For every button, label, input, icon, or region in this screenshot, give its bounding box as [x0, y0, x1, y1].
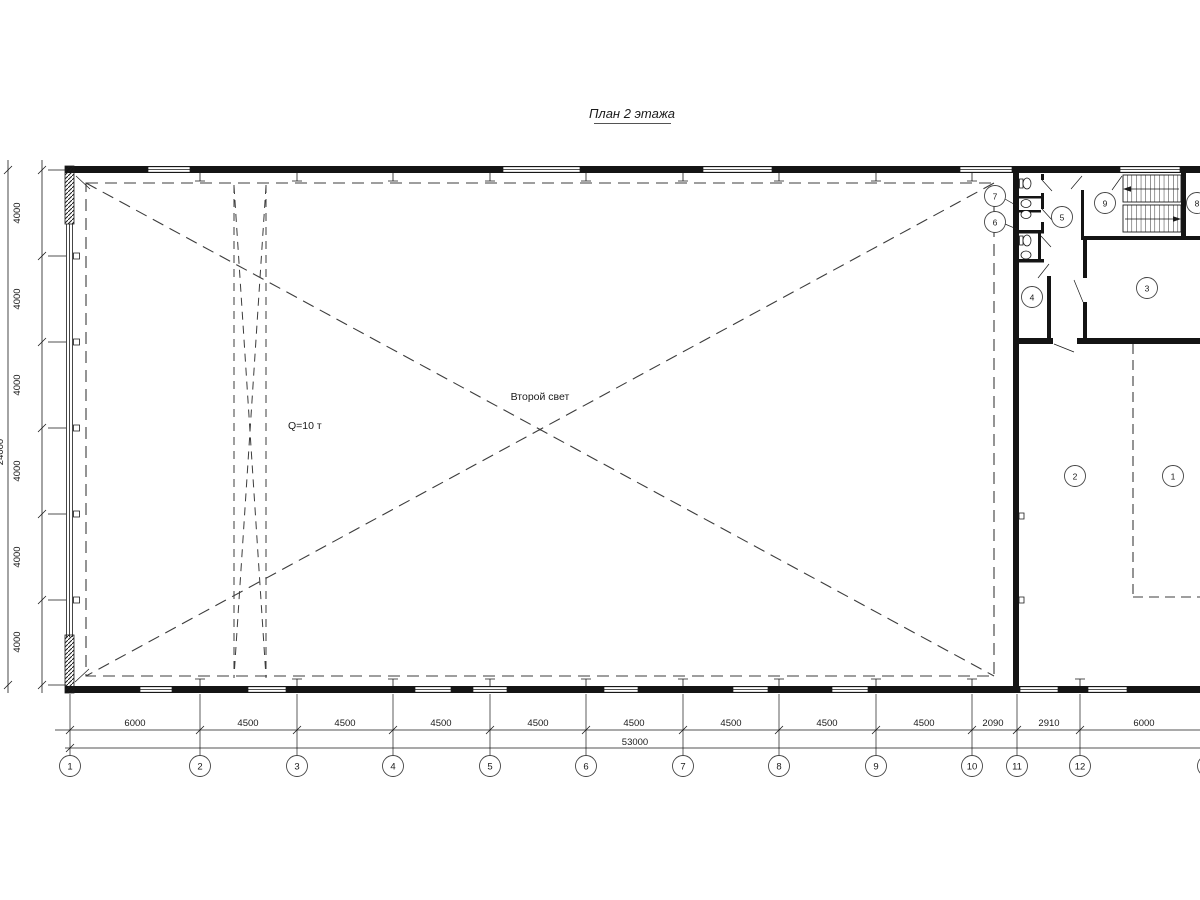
svg-text:5: 5	[487, 762, 492, 773]
dim-left-3: 4000	[12, 460, 23, 481]
crane-capacity-label: Q=10 т	[288, 420, 322, 432]
svg-text:9: 9	[1103, 199, 1108, 209]
bottom-dimensions: 6000 4500 4500 4500 4500 4500 4500 4500 …	[55, 694, 1200, 777]
room-bubble-3: 3	[1137, 278, 1158, 299]
sink-icon	[1021, 211, 1031, 219]
axis-bubble-3: 3	[287, 756, 308, 777]
svg-text:6: 6	[993, 218, 998, 228]
room-bubble-9: 9	[1095, 193, 1116, 214]
svg-text:3: 3	[294, 762, 299, 773]
left-dimensions: 4000 4000 4000 4000 4000 4000 24000	[0, 160, 66, 693]
dim-bottom-3: 4500	[430, 718, 451, 729]
svg-text:1: 1	[1171, 472, 1176, 482]
crane-cross	[234, 186, 266, 677]
dim-left-1: 4000	[12, 288, 23, 309]
axis-bubble-8: 8	[769, 756, 790, 777]
dim-left-0: 4000	[12, 202, 23, 223]
crane-runway: Q=10 т	[234, 185, 322, 678]
axis-bubble-12: 12	[1070, 756, 1091, 777]
axis-bubble-11: 11	[1007, 756, 1028, 777]
dim-left-5: 4000	[12, 631, 23, 652]
axis-bubble-9: 9	[866, 756, 887, 777]
toilet-icon	[1020, 236, 1024, 245]
room-bubble-7: 7	[985, 186, 1006, 207]
dim-total-bottom: 53000	[622, 737, 648, 748]
dim-bottom-9: 2090	[982, 718, 1003, 729]
dim-bottom-4: 4500	[527, 718, 548, 729]
svg-text:2: 2	[1073, 472, 1078, 482]
dim-bottom-2: 4500	[334, 718, 355, 729]
axis-bubble-2: 2	[190, 756, 211, 777]
axis-bubble-4: 4	[383, 756, 404, 777]
room-bubble-1: 1	[1163, 466, 1184, 487]
room-bubble-8: 8	[1187, 193, 1200, 214]
svg-text:5: 5	[1060, 213, 1065, 223]
page-title: План 2 этажа	[589, 106, 675, 121]
stair-flight-upper	[1123, 175, 1181, 202]
top-wall	[65, 166, 1200, 173]
second-light-void: Второй свет	[86, 183, 994, 676]
column-marks-right-wall	[1019, 513, 1024, 603]
second-light-label: Второй свет	[511, 391, 570, 403]
left-window-band	[67, 224, 73, 637]
room-bubble-5: 5	[1052, 207, 1073, 228]
svg-text:10: 10	[967, 762, 978, 773]
room-bubble-2: 2	[1065, 466, 1086, 487]
dim-bottom-10: 2910	[1038, 718, 1059, 729]
axis-bubble-1: 1	[60, 756, 81, 777]
svg-text:2: 2	[197, 762, 202, 773]
axis-bubble-10: 10	[962, 756, 983, 777]
hall-annex-dividing-wall	[1013, 166, 1019, 693]
dim-bottom-1: 4500	[237, 718, 258, 729]
axis-bubble-6: 6	[576, 756, 597, 777]
svg-text:12: 12	[1075, 762, 1086, 773]
dim-bottom-8: 4500	[913, 718, 934, 729]
room-bubble-6: 6	[985, 212, 1006, 233]
dim-bottom-0: 6000	[124, 718, 145, 729]
dim-bottom-7: 4500	[816, 718, 837, 729]
svg-text:8: 8	[1195, 199, 1200, 209]
svg-text:8: 8	[776, 762, 781, 773]
dim-left-2: 4000	[12, 374, 23, 395]
stair-flight-lower	[1123, 205, 1181, 232]
svg-text:9: 9	[873, 762, 878, 773]
column-marks-top	[195, 173, 977, 181]
dim-bottom-5: 4500	[623, 718, 644, 729]
dim-total-left: 24000	[0, 439, 6, 465]
corner-column-top-left	[65, 166, 74, 224]
column-marks-bottom	[195, 679, 1085, 686]
staircase	[1123, 175, 1181, 232]
sanitary-fixtures	[1020, 178, 1032, 259]
floor-plan-sheet: План 2 этажа	[0, 0, 1200, 900]
room-bubble-4: 4	[1022, 287, 1043, 308]
void-cross	[86, 183, 994, 676]
svg-text:11: 11	[1012, 762, 1022, 773]
sink-icon	[1021, 200, 1031, 208]
svg-text:4: 4	[390, 762, 395, 773]
toilet-icon	[1023, 178, 1031, 189]
svg-text:1: 1	[67, 762, 72, 773]
column-marks	[74, 173, 1086, 686]
svg-text:7: 7	[680, 762, 685, 773]
column-marks-left-wall	[74, 253, 80, 603]
axis-bubble-5: 5	[480, 756, 501, 777]
dim-bottom-11: 6000	[1133, 718, 1154, 729]
dim-bottom-6: 4500	[720, 718, 741, 729]
extension-lines-left	[48, 170, 66, 685]
svg-text:4: 4	[1030, 293, 1035, 303]
dim-left-4: 4000	[12, 546, 23, 567]
svg-text:7: 7	[993, 192, 998, 202]
axis-bubble-7: 7	[673, 756, 694, 777]
corner-column-bottom-left	[65, 635, 74, 693]
floor-plan-drawing: План 2 этажа	[0, 0, 1200, 900]
svg-text:6: 6	[583, 762, 588, 773]
sink-icon	[1021, 251, 1031, 259]
toilet-icon	[1020, 179, 1024, 188]
drawing-header: План 2 этажа	[589, 106, 675, 124]
svg-text:3: 3	[1145, 284, 1150, 294]
toilet-icon	[1023, 235, 1031, 246]
